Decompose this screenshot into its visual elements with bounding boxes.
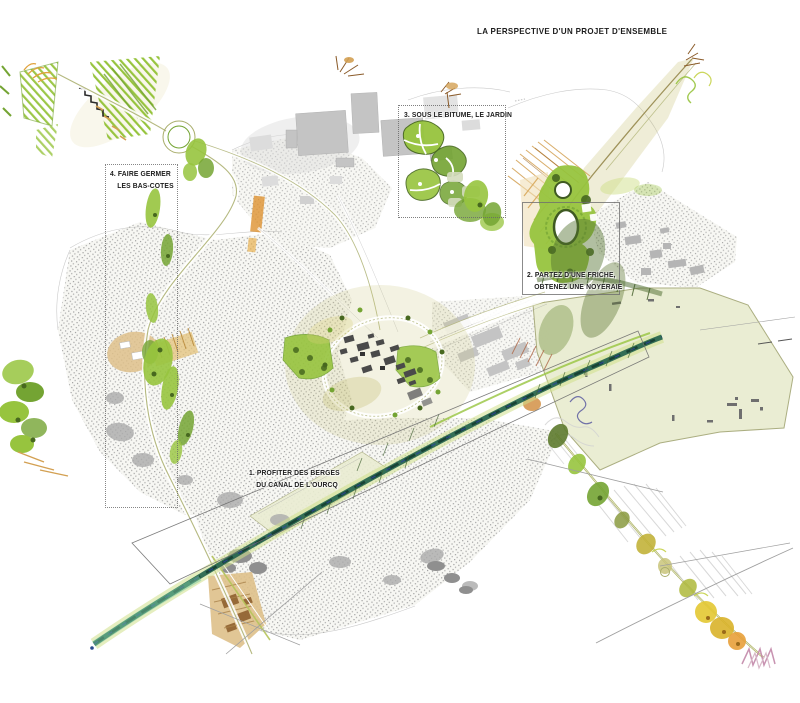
annotation-2-line1: 2. PARTEZ D'UNE FRICHE, — [527, 269, 613, 281]
edge-greens — [0, 66, 11, 116]
annotation-label-2: 2. PARTEZ D'UNE FRICHE, OBTENEZ UNE NOYE… — [527, 269, 613, 292]
annotation-box-4: 4. FAIRE GERMER LES BAS-COTES — [105, 164, 178, 508]
annotation-4-line1: 4. FAIRE GERMER — [110, 168, 174, 180]
annotation-3-line1: 3. SOUS LE BITUME, LE JARDIN — [404, 109, 512, 121]
annotation-1-line2: DU CANAL DE L'OURCQ — [249, 479, 340, 491]
page-title: LA PERSPECTIVE D'UN PROJET D'ENSEMBLE — [477, 26, 667, 36]
annotation-label-4: 4. FAIRE GERMER LES BAS-COTES — [110, 168, 174, 191]
annotation-box-3: 3. SOUS LE BITUME, LE JARDIN — [398, 105, 506, 218]
annotation-4-line2: LES BAS-COTES — [110, 180, 174, 192]
pencil-fuzz-se — [598, 484, 752, 600]
annotation-label-3: 3. SOUS LE BITUME, LE JARDIN — [404, 109, 512, 121]
annotation-box-2: 2. PARTEZ D'UNE FRICHE, OBTENEZ UNE NOYE… — [522, 202, 620, 295]
left-edge-greens — [0, 356, 68, 476]
annotation-1-line1: 1. PROFITER DES BERGES — [249, 467, 340, 479]
pink-zigzag — [742, 649, 775, 665]
hatched-hills — [0, 48, 183, 163]
masterplan-page: LA PERSPECTIVE D'UN PROJET D'ENSEMBLE 3.… — [0, 0, 800, 703]
annotation-2-line2: OBTENEZ UNE NOYERAIE — [527, 281, 613, 293]
se-corridor — [527, 420, 793, 668]
annotation-label-1: 1. PROFITER DES BERGES DU CANAL DE L'OUR… — [249, 467, 340, 490]
